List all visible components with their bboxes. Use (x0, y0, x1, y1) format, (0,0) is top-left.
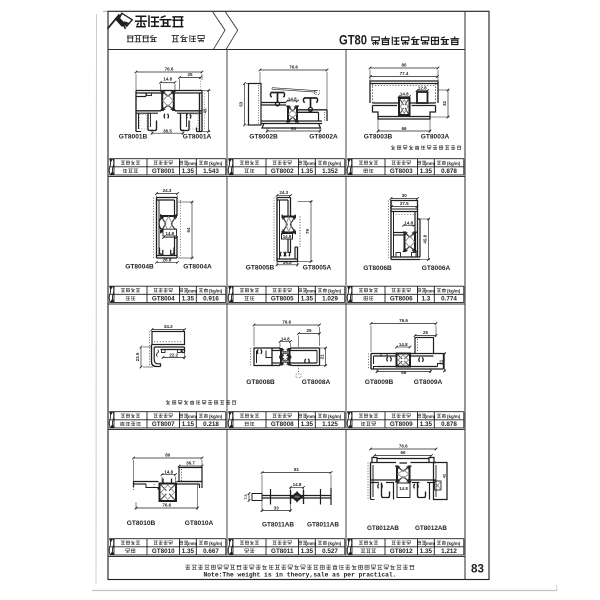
svg-text:(mm): (mm) (187, 161, 198, 166)
svg-text:GT8009A: GT8009A (414, 380, 443, 386)
svg-text:14.8: 14.8 (404, 221, 413, 226)
svg-text:45.8: 45.8 (423, 234, 428, 243)
svg-text:12.8: 12.8 (418, 86, 427, 91)
svg-text:1.029: 1.029 (322, 296, 338, 303)
svg-text:(mm): (mm) (187, 288, 198, 293)
svg-text:24.3: 24.3 (163, 188, 172, 193)
svg-text:GT8012AB: GT8012AB (415, 526, 448, 532)
svg-text:14.8: 14.8 (288, 96, 297, 101)
svg-text:7.5: 7.5 (244, 494, 248, 499)
svg-text:(kg/m): (kg/m) (209, 288, 223, 293)
svg-text:83: 83 (471, 563, 484, 576)
svg-text:24.3: 24.3 (279, 190, 288, 195)
svg-text:(kg/m): (kg/m) (209, 414, 223, 419)
svg-text:1.35: 1.35 (182, 296, 195, 303)
svg-text:1.35: 1.35 (420, 548, 433, 555)
svg-text:GT8010B: GT8010B (127, 521, 156, 527)
svg-text:GT8003A: GT8003A (421, 135, 450, 141)
svg-text:81: 81 (294, 467, 300, 472)
svg-text:34.2: 34.2 (164, 324, 173, 329)
svg-text:42: 42 (442, 474, 446, 478)
svg-text:(kg/m): (kg/m) (328, 541, 342, 546)
svg-text:GT8008B: GT8008B (246, 380, 275, 386)
svg-text:79: 79 (305, 229, 310, 235)
svg-text:1.35: 1.35 (301, 421, 314, 428)
svg-text:GT8007: GT8007 (152, 421, 175, 428)
svg-text:GT8010: GT8010 (152, 548, 175, 555)
svg-text:14.8: 14.8 (283, 234, 292, 239)
svg-text:80: 80 (401, 62, 407, 67)
svg-text:0.774: 0.774 (441, 296, 457, 303)
svg-text:45: 45 (203, 108, 208, 114)
svg-text:1.35: 1.35 (420, 421, 433, 428)
svg-text:0.667: 0.667 (203, 548, 219, 555)
svg-text:GT8009: GT8009 (390, 421, 413, 428)
svg-text:1.125: 1.125 (322, 421, 338, 428)
svg-text:1.35: 1.35 (301, 168, 314, 175)
svg-text:GT8004A: GT8004A (183, 265, 212, 271)
svg-text:(kg/m): (kg/m) (209, 161, 223, 166)
svg-text:0.527: 0.527 (322, 548, 338, 555)
svg-text:GT8006: GT8006 (390, 296, 413, 303)
svg-text:GT8002B: GT8002B (249, 135, 278, 141)
svg-text:GT8005B: GT8005B (246, 266, 275, 272)
svg-text:GT8012AB: GT8012AB (367, 526, 400, 532)
svg-text:(mm): (mm) (306, 541, 317, 546)
svg-text:(kg/m): (kg/m) (447, 541, 461, 546)
svg-text:GT8003B: GT8003B (364, 135, 393, 141)
svg-text:66: 66 (291, 126, 297, 131)
svg-text:GT8006B: GT8006B (363, 266, 392, 272)
svg-text:14.8: 14.8 (163, 77, 172, 82)
svg-text:33: 33 (274, 506, 280, 511)
svg-text:GT8006A: GT8006A (422, 266, 451, 272)
svg-text:(kg/m): (kg/m) (328, 288, 342, 293)
svg-text:66: 66 (401, 370, 407, 375)
svg-text:80: 80 (165, 452, 171, 457)
svg-text:1.35: 1.35 (301, 548, 314, 555)
svg-text:(kg/m): (kg/m) (447, 288, 461, 293)
svg-text:GT8001: GT8001 (152, 168, 175, 175)
svg-text:(mm): (mm) (187, 541, 198, 546)
svg-text:26.8: 26.8 (163, 258, 172, 263)
svg-text:32: 32 (442, 101, 447, 107)
svg-text:26.8: 26.8 (283, 260, 292, 265)
svg-text:36.5: 36.5 (163, 128, 172, 133)
svg-text:66: 66 (400, 450, 406, 455)
svg-text:25: 25 (187, 72, 193, 77)
svg-text:GT8002: GT8002 (271, 168, 294, 175)
svg-text:(mm): (mm) (306, 161, 317, 166)
svg-text:64: 64 (186, 227, 191, 233)
svg-text:GT8011AB: GT8011AB (307, 522, 340, 528)
svg-text:14.8: 14.8 (166, 231, 175, 236)
svg-text:(mm): (mm) (425, 161, 436, 166)
svg-text:1.15: 1.15 (182, 421, 195, 428)
svg-text:1.35: 1.35 (182, 548, 195, 555)
svg-text:22.2: 22.2 (169, 353, 178, 358)
svg-text:76.6: 76.6 (282, 319, 291, 324)
svg-text:0.218: 0.218 (203, 421, 219, 428)
svg-text:14.8: 14.8 (293, 482, 302, 487)
svg-text:GT8001A: GT8001A (183, 135, 212, 141)
svg-text:GT80: GT80 (339, 33, 367, 48)
svg-text:21: 21 (320, 354, 325, 360)
svg-text:1.543: 1.543 (203, 168, 219, 175)
svg-text:23.5: 23.5 (135, 352, 140, 361)
svg-text:1.35: 1.35 (420, 168, 433, 175)
svg-text:66: 66 (401, 126, 407, 131)
svg-text:14.8: 14.8 (164, 470, 173, 475)
svg-text:76.6: 76.6 (399, 443, 408, 448)
svg-text:GT8005A: GT8005A (303, 266, 332, 272)
svg-text:(kg/m): (kg/m) (447, 414, 461, 419)
svg-text:30: 30 (402, 193, 408, 198)
svg-text:76.6: 76.6 (162, 502, 171, 507)
svg-text:(mm): (mm) (187, 414, 198, 419)
svg-text:GT8011: GT8011 (271, 548, 294, 555)
svg-text:14.8: 14.8 (399, 486, 408, 491)
svg-text:1.3: 1.3 (422, 296, 431, 303)
svg-text:GT8003: GT8003 (390, 168, 413, 175)
svg-text:1.35: 1.35 (301, 296, 314, 303)
svg-text:GT8009B: GT8009B (365, 380, 394, 386)
svg-text:GT8005: GT8005 (271, 296, 294, 303)
svg-text:GT8008: GT8008 (271, 421, 294, 428)
svg-text:14.8: 14.8 (399, 342, 408, 347)
svg-text:1.352: 1.352 (322, 168, 338, 175)
svg-text:25: 25 (423, 330, 429, 335)
svg-text:GT8010A: GT8010A (185, 521, 214, 527)
svg-text:14.8: 14.8 (400, 92, 409, 97)
svg-text:(kg/m): (kg/m) (328, 161, 342, 166)
svg-text:0.878: 0.878 (441, 421, 457, 428)
svg-text:0.878: 0.878 (441, 168, 457, 175)
svg-text:GT8002A: GT8002A (309, 135, 338, 141)
svg-text:(mm): (mm) (306, 288, 317, 293)
svg-text:GT8001B: GT8001B (119, 135, 148, 141)
svg-text:14.8: 14.8 (281, 337, 290, 342)
svg-text:36.7: 36.7 (186, 460, 195, 465)
svg-text:76.6: 76.6 (289, 64, 298, 69)
svg-text:76.6: 76.6 (165, 66, 174, 71)
svg-text:Note:The weight is in theory,s: Note:The weight is in theory,sale as per… (204, 572, 397, 579)
svg-text:25: 25 (306, 328, 312, 333)
svg-text:(mm): (mm) (306, 414, 317, 419)
svg-text:27.5: 27.5 (400, 201, 409, 206)
svg-text:(mm): (mm) (425, 414, 436, 419)
svg-text:1.35: 1.35 (182, 168, 195, 175)
svg-text:GT8004: GT8004 (152, 296, 175, 303)
svg-text:(kg/m): (kg/m) (209, 541, 223, 546)
svg-text:0.916: 0.916 (203, 296, 219, 303)
svg-text:GT8008A: GT8008A (302, 380, 331, 386)
svg-text:1.212: 1.212 (441, 548, 457, 555)
svg-text:77.4: 77.4 (400, 71, 409, 76)
svg-text:(mm): (mm) (425, 288, 436, 293)
svg-text:GT8011AB: GT8011AB (262, 522, 295, 528)
svg-text:GT8012: GT8012 (390, 548, 413, 555)
svg-text:53: 53 (239, 101, 244, 107)
svg-text:(kg/m): (kg/m) (328, 414, 342, 419)
svg-text:GT8004B: GT8004B (125, 265, 154, 271)
svg-text:(mm): (mm) (425, 541, 436, 546)
svg-text:76.6: 76.6 (399, 318, 408, 323)
svg-text:(kg/m): (kg/m) (447, 161, 461, 166)
